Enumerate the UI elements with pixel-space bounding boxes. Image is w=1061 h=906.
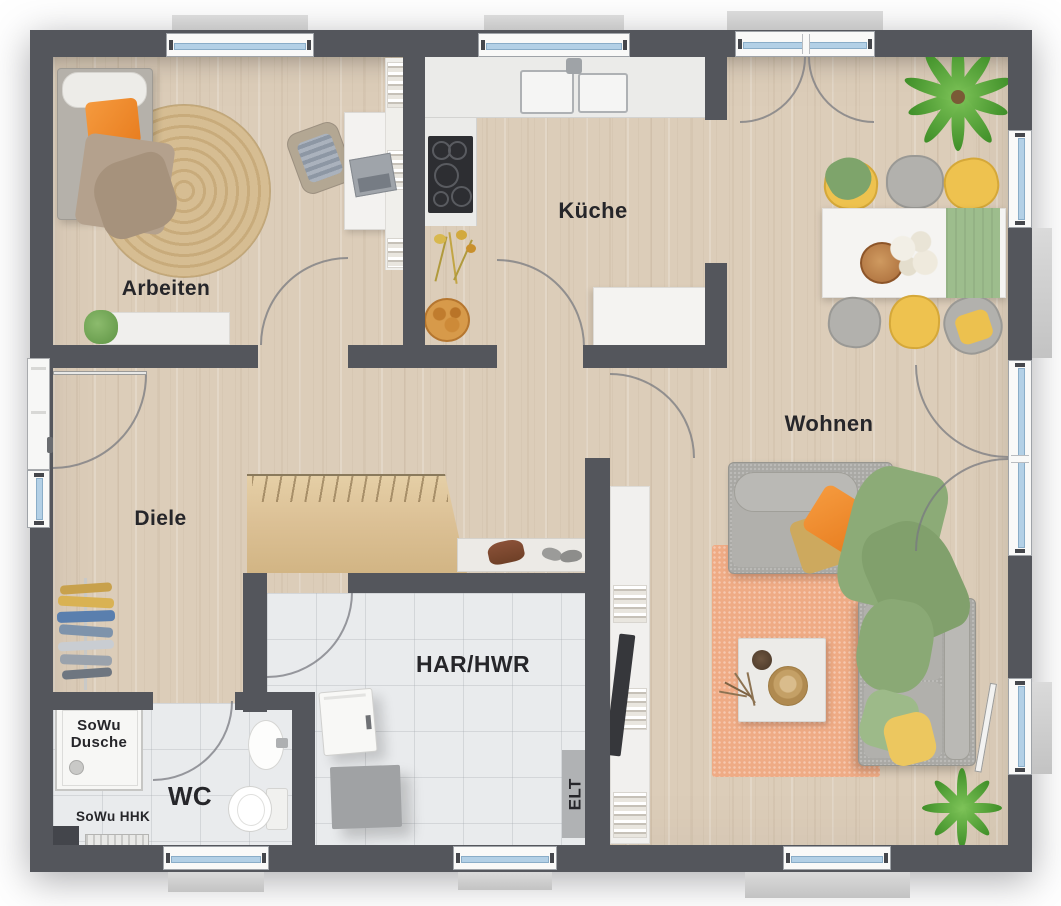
vase-flowers (426, 232, 482, 304)
entry-sidelight (27, 470, 50, 528)
window (1008, 130, 1032, 228)
room-label-kueche: Küche (528, 199, 658, 223)
sideboard (100, 312, 230, 345)
fruit-bowl (424, 298, 470, 342)
room-label-wc: WC (150, 782, 230, 811)
book-stack (613, 792, 647, 838)
terrace-door (1008, 360, 1032, 556)
kitchen-sink (578, 73, 628, 113)
window-glass (36, 478, 43, 520)
wall (292, 692, 315, 848)
door-landing (727, 11, 883, 32)
window-glass (1018, 138, 1025, 220)
washing-machine (318, 688, 377, 756)
window (453, 846, 557, 870)
window-sill (168, 872, 264, 892)
window-glass (461, 856, 549, 863)
floor-plant (920, 766, 1004, 850)
room-label-har-hwr: HAR/HWR (378, 652, 568, 677)
kitchen-sink (520, 70, 574, 114)
faucet-icon (276, 738, 288, 748)
toilet-bowl (228, 786, 272, 832)
wall (705, 263, 727, 345)
room-label-elt: ELT (558, 752, 594, 836)
open-door-leaf (53, 371, 147, 375)
exterior-pilaster (1032, 682, 1052, 774)
wall (403, 57, 425, 345)
laundry-box (330, 765, 402, 829)
french-door (735, 31, 875, 57)
window-sill (458, 872, 552, 890)
dried-flowers (886, 226, 942, 282)
potted-plant (84, 310, 118, 344)
room-label-arbeiten: Arbeiten (93, 277, 239, 300)
window-glass (791, 856, 883, 863)
window-glass (171, 856, 261, 863)
wall (583, 345, 727, 368)
exterior-pilaster (1032, 228, 1052, 358)
faucet-icon (566, 58, 582, 74)
heater-label: SoWu HHK (76, 810, 186, 825)
wall (425, 345, 497, 368)
room-label-wohnen: Wohnen (758, 412, 900, 436)
dining-chair-gray (886, 155, 944, 209)
window (478, 33, 630, 57)
floor-plan: Arbeiten Küche (0, 0, 1061, 906)
window-glass (174, 43, 306, 50)
cooktop (428, 136, 473, 213)
hanging-clothes (57, 610, 115, 623)
stair-treads (252, 476, 448, 502)
room-label-diele: Diele (103, 507, 218, 530)
shower-label: SoWu Dusche (55, 718, 143, 751)
window-glass (486, 43, 622, 50)
exterior-landing (745, 872, 910, 898)
hanging-clothes (60, 654, 112, 666)
wall (705, 57, 727, 120)
wall (348, 573, 593, 593)
book-stack (613, 585, 647, 623)
kitchen-peninsula (593, 287, 710, 347)
decor-tray (768, 666, 808, 706)
wall (53, 692, 153, 710)
laptop (349, 153, 397, 198)
table-runner (946, 208, 1000, 298)
window-glass (1018, 686, 1025, 767)
dried-plant (726, 664, 766, 714)
window (783, 846, 891, 870)
entry-door (27, 358, 50, 470)
window (1008, 678, 1032, 775)
service-shaft (53, 826, 79, 846)
wall (53, 345, 258, 368)
window (166, 33, 314, 57)
window (163, 846, 269, 870)
wall (348, 345, 425, 368)
